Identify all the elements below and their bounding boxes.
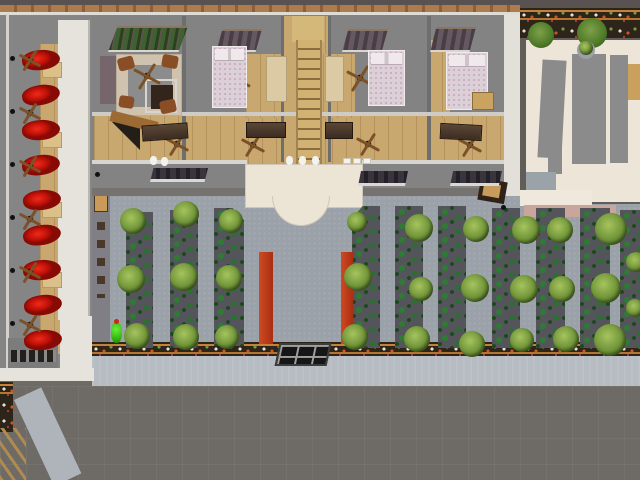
ceiling-fan (18, 313, 42, 337)
armchair (118, 95, 135, 109)
wall-lamp (10, 162, 15, 167)
garden-bush (595, 213, 627, 245)
wall-lamp (10, 321, 15, 326)
wall-lamp (10, 215, 15, 220)
garden-bush (124, 323, 150, 349)
north-wall-top (0, 5, 520, 12)
garden-bush (170, 263, 198, 291)
garden-bush (591, 273, 621, 303)
roof-vent (343, 158, 351, 164)
ceiling-fan (18, 154, 42, 178)
ceiling-fan (18, 207, 42, 231)
dining-table (266, 56, 287, 102)
red-planter-bench (259, 252, 273, 344)
bath-fixture (150, 156, 157, 165)
study-desk (246, 122, 286, 138)
facade-window (150, 168, 208, 182)
west-wall-cap (6, 14, 9, 368)
neighbor-lower-canopy (520, 190, 592, 206)
garden-bush (120, 208, 146, 234)
room-divider-wall (427, 16, 431, 162)
garden-bush (215, 325, 239, 349)
slatted-window (11, 350, 56, 362)
skylight-window-planted (108, 26, 188, 52)
garden-bush (594, 324, 626, 356)
lumber-stack (0, 428, 26, 480)
garden-bush (463, 216, 489, 242)
facade-window (358, 171, 408, 186)
3d-viewport[interactable] (0, 0, 640, 480)
garden-bush (173, 201, 199, 227)
garden-bush (216, 265, 242, 291)
garden-bush (347, 212, 367, 232)
facade-window (450, 171, 502, 186)
study-desk (141, 122, 188, 141)
neighbor-building (526, 40, 640, 202)
garden-bush (173, 324, 199, 350)
garden-wall-slats (97, 222, 105, 298)
pedestrian-figure (111, 322, 122, 343)
garden-bush (549, 276, 575, 302)
wall-lamp (10, 56, 15, 61)
bath-fixture (312, 156, 319, 165)
ceiling-fan (132, 61, 162, 91)
neighbor-shadow-patch (572, 54, 606, 164)
topiary-bush (579, 41, 593, 55)
garden-bush (342, 324, 368, 350)
facade-wall-cap (92, 160, 247, 164)
garden-bush (626, 252, 640, 272)
garden-bush (461, 274, 489, 302)
north-wall-cap (0, 12, 520, 15)
roadside-flowerbed (0, 382, 13, 432)
bath-fixture (286, 156, 293, 165)
bath-fixture (299, 156, 306, 165)
wall-lamp (10, 109, 15, 114)
neighbor-shadow-patch (610, 55, 628, 163)
garden-bush (219, 209, 243, 233)
bedroom-window (430, 27, 476, 52)
garden-bush (553, 326, 579, 352)
bedroom-window (342, 29, 388, 52)
garden-bush (510, 275, 538, 303)
garden-bush (626, 299, 640, 317)
east-white-wall (504, 14, 520, 196)
wall-lamp (501, 205, 506, 210)
garden-bush (512, 216, 540, 244)
street-tree (528, 22, 554, 48)
living-room-door (100, 56, 116, 104)
study-desk (325, 122, 353, 139)
south-wall-trim (0, 368, 94, 381)
ceiling-fan (18, 101, 42, 125)
ceiling-fan (18, 48, 42, 72)
garden-bush (405, 214, 433, 242)
wall-lamp (95, 172, 100, 177)
ceiling-fan (355, 131, 381, 157)
garden-bush (404, 326, 430, 352)
stair-landing (292, 16, 324, 42)
bedroom-bed (368, 50, 405, 106)
entrance-gate-grate (275, 343, 332, 366)
roof-vent (363, 158, 371, 164)
neighbor-shadow-patch (548, 130, 562, 174)
road (0, 386, 640, 480)
garden-bush (510, 328, 534, 352)
roof-vent (353, 158, 361, 164)
garden-bush (409, 277, 433, 301)
dining-table (325, 56, 344, 102)
neighbor-wood-deck (628, 64, 640, 100)
staircase (296, 40, 322, 166)
bath-fixture (161, 157, 168, 166)
sidewalk (92, 356, 640, 386)
study-desk (440, 123, 483, 141)
garden-bush (344, 263, 372, 291)
ceiling-fan (18, 260, 42, 284)
garden-bush (117, 265, 145, 293)
garden-strip (438, 206, 466, 348)
armchair (161, 54, 179, 70)
closet (472, 92, 494, 110)
wall-lamp (10, 268, 15, 273)
facade-wall-cap (362, 160, 506, 164)
bedroom-bed (212, 46, 247, 108)
west-white-wall (58, 20, 90, 320)
garden-bush (547, 217, 573, 243)
garden-bush (459, 331, 485, 357)
